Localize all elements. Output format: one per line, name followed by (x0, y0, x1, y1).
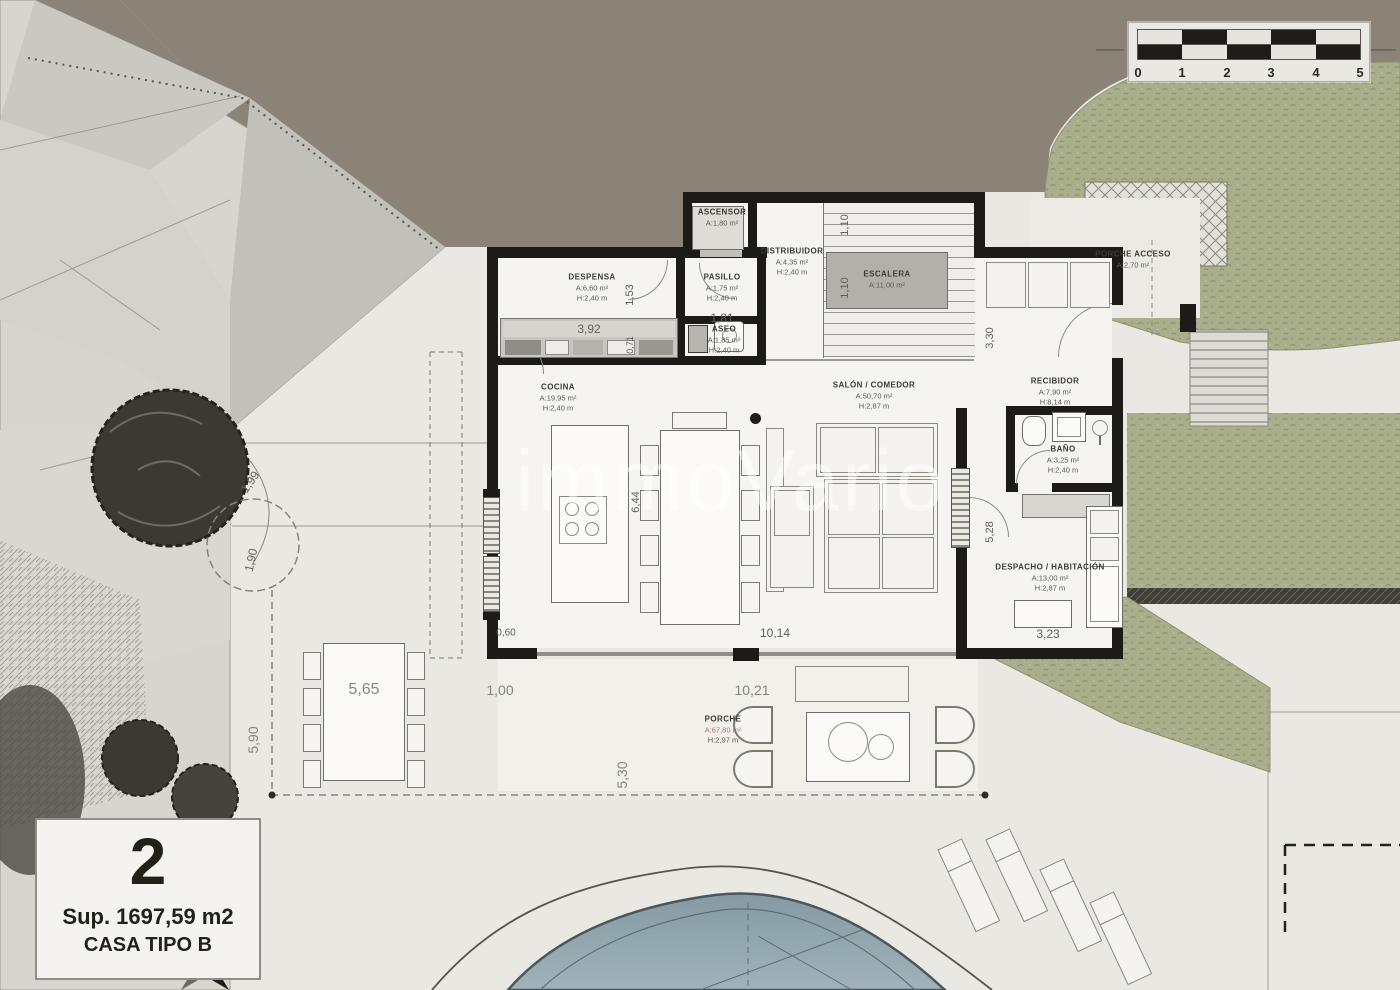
vegetation-right (1127, 413, 1400, 591)
room-label-distribuidor: DISTRIBUIDOR A:4,35 m² H:2,40 m (761, 246, 824, 277)
plot-title-box: 2 Sup. 1697,59 m2 CASA TIPO B (35, 818, 261, 980)
cabinet (573, 340, 603, 355)
room-area: A:19,95 m² (540, 393, 577, 403)
room-label-cocina: COCINA A:19,95 m² H:2,40 m (540, 382, 577, 413)
room-area: A:6,60 m² (568, 283, 615, 293)
dim-porch-width: 10,21 (734, 682, 769, 698)
cabinet (545, 340, 569, 355)
outdoor-table (323, 643, 405, 781)
wall-column (733, 648, 759, 661)
room-name: PASILLO (704, 272, 741, 283)
wall (956, 648, 1123, 659)
room-height: H:2,40 m (708, 345, 741, 355)
room-name: BAÑO (1047, 444, 1080, 455)
room-area: A:3,25 m² (1047, 455, 1080, 465)
outdoor-chair (407, 688, 425, 716)
room-height: H:2,87 m (995, 583, 1104, 593)
room-area: A:1,75 m² (704, 283, 741, 293)
wall (1006, 483, 1018, 492)
room-name: SALÓN / COMEDOR (833, 380, 915, 391)
scale-tick: 2 (1223, 65, 1230, 80)
room-height: H:2,40 m (1047, 465, 1080, 475)
scale-bar: 0 1 2 3 4 5 (1128, 22, 1370, 82)
room-area: A:1,85 m² (708, 335, 741, 345)
scale-cell (1138, 30, 1182, 44)
room-height: H:2,97 m (705, 735, 742, 745)
plot-surface: Sup. 1697,59 m2 (37, 904, 259, 930)
wall (748, 192, 757, 258)
room-area: A:67,80 m² (705, 725, 742, 735)
porch-chair (935, 750, 975, 788)
room-area: A:50,70 m² (833, 391, 915, 401)
closet (986, 262, 1026, 308)
room-area: A:13,00 m² (995, 573, 1104, 583)
dim-despacho-width: 3,23 (1036, 627, 1059, 641)
closet (1028, 262, 1068, 308)
sink-basin (1057, 417, 1081, 437)
scale-cell (1316, 30, 1360, 44)
dim-stair-upper: 1,10 (839, 214, 851, 235)
outdoor-chair (407, 724, 425, 752)
room-height: H:2,40 m (704, 293, 741, 303)
room-area: A:11,00 m² (863, 280, 910, 290)
floor-plan-canvas: ASCENSOR A:1,80 m² DISTRIBUIDOR A:4,35 m… (0, 0, 1400, 990)
dining-chair (672, 412, 727, 429)
room-label-escalera: ESCALERA A:11,00 m² (863, 270, 910, 291)
porch-bench-outline (795, 666, 909, 702)
scale-bar-tick-line (1096, 49, 1124, 51)
outdoor-chair (303, 652, 321, 680)
washbasin (688, 325, 708, 353)
dining-chair (640, 582, 659, 613)
dim-aseo-side: 0,71 (625, 336, 635, 354)
plot-number: 2 (37, 828, 259, 894)
scale-bar-row (1137, 29, 1361, 45)
wall (683, 192, 985, 203)
room-label-bano: BAÑO A:3,25 m² H:2,40 m (1047, 444, 1080, 475)
wall (483, 611, 500, 620)
shower-valve (1092, 420, 1108, 436)
sofa-cushion (828, 537, 880, 589)
toilet (1022, 416, 1046, 446)
sliding-glass-door (537, 652, 733, 656)
room-label-porche: PORCHE A:67,80 m² H:2,97 m (705, 714, 742, 745)
room-label-recibidor: RECIBIDOR A:7,90 m² H:8,14 m (1031, 376, 1080, 407)
room-area: A:4,35 m² (761, 257, 824, 267)
scale-cell (1182, 45, 1226, 59)
room-name: PORCHE (705, 714, 742, 725)
dining-chair (640, 535, 659, 566)
room-name: RECIBIDOR (1031, 376, 1080, 387)
porch-table-plate (828, 722, 868, 762)
scale-cell (1271, 45, 1315, 59)
bed-pillow (1090, 510, 1119, 534)
entry-steps (1190, 330, 1268, 426)
room-height: H:2,40 m (540, 403, 577, 413)
outdoor-chair (407, 652, 425, 680)
bed-pillow (1090, 537, 1119, 561)
room-name: ASCENSOR (698, 208, 747, 219)
room-label-porche-acceso: PORCHE ACCESO A:2,70 m² (1095, 250, 1171, 271)
desk (1014, 600, 1072, 628)
scale-cell (1271, 30, 1315, 44)
room-label-despacho: DESPACHO / HABITACIÓN A:13,00 m² H:2,87 … (995, 562, 1104, 593)
dim-recibidor-side: 3,30 (984, 327, 996, 348)
room-label-pasillo: PASILLO A:1,75 m² H:2,40 m (704, 272, 741, 303)
wall (683, 192, 692, 258)
room-height: H:2,40 m (568, 293, 615, 303)
scale-tick: 4 (1312, 65, 1319, 80)
room-label-ascensor: ASCENSOR A:1,80 m² (698, 208, 747, 229)
room-area: A:2,70 m² (1095, 260, 1171, 270)
elevator-door (700, 250, 742, 257)
stair-edge-line (766, 359, 974, 361)
dim-outdoor-table: 5,65 (348, 681, 379, 699)
window (483, 497, 500, 554)
dim-despensa-cabinets: 3,92 (577, 322, 600, 336)
dining-chair (741, 535, 760, 566)
dim-despacho-side: 5,28 (984, 521, 996, 542)
dim-porch-depth: 5,30 (614, 761, 630, 788)
scale-cell (1227, 30, 1271, 44)
sliding-glass-door (759, 652, 956, 656)
cabinet (639, 340, 673, 355)
room-name: PORCHE ACCESO (1095, 250, 1171, 261)
pendant-light (750, 413, 761, 424)
room-label-despensa: DESPENSA A:6,60 m² H:2,40 m (568, 272, 615, 303)
room-label-salon-comedor: SALÓN / COMEDOR A:50,70 m² H:2,87 m (833, 380, 915, 411)
wall (487, 648, 537, 659)
wall (1006, 406, 1015, 492)
porch-table-plate (868, 734, 894, 760)
room-name: DESPENSA (568, 272, 615, 283)
pool (432, 866, 992, 990)
room-name: DESPACHO / HABITACIÓN (995, 562, 1104, 573)
room-name: ESCALERA (863, 270, 910, 281)
dim-stair-lower: 1,10 (839, 277, 851, 298)
shower-valve-stem (1099, 436, 1101, 445)
retaining-wall (1127, 588, 1400, 604)
scale-tick: 0 (1134, 65, 1141, 80)
room-height: H:2,40 m (761, 267, 824, 277)
room-area: A:1,80 m² (698, 218, 747, 228)
watermark: immoVario (515, 432, 947, 531)
scale-cell (1316, 45, 1360, 59)
room-area: A:7,90 m² (1031, 387, 1080, 397)
cabinet (505, 340, 541, 355)
scale-cell (1227, 45, 1271, 59)
dim-terrace-side: 5,90 (245, 726, 261, 753)
dim-salon-width: 10,14 (760, 626, 790, 640)
porch-chair (935, 706, 975, 744)
scale-bar-tick-line (1370, 49, 1396, 51)
room-name: ASEO (708, 324, 741, 335)
scale-bar-row (1137, 44, 1361, 60)
scale-cell (1182, 30, 1226, 44)
outdoor-chair (407, 760, 425, 788)
scale-tick: 1 (1178, 65, 1185, 80)
scale-cell (1138, 45, 1182, 59)
room-label-aseo: ASEO A:1,85 m² H:2,40 m (708, 324, 741, 355)
scale-tick: 5 (1356, 65, 1363, 80)
dim-despensa-side: 1,53 (624, 284, 636, 305)
dim-aseo-width: 1,81 (710, 311, 733, 325)
dim-wall-segment: 0,60 (496, 628, 515, 639)
window (951, 468, 970, 548)
sofa-cushion (882, 537, 934, 589)
outdoor-chair (303, 760, 321, 788)
room-name: DISTRIBUIDOR (761, 246, 824, 257)
room-height: H:2,87 m (833, 401, 915, 411)
dining-chair (741, 582, 760, 613)
scale-tick: 3 (1267, 65, 1274, 80)
sun-loungers (938, 829, 1152, 985)
wall (1052, 483, 1123, 492)
outdoor-chair (303, 724, 321, 752)
room-name: COCINA (540, 382, 577, 393)
room-height: H:8,14 m (1031, 397, 1080, 407)
wall (974, 192, 985, 258)
window (483, 556, 500, 612)
house-type: CASA TIPO B (37, 934, 259, 957)
porch-chair (733, 750, 773, 788)
dim-porch-offset: 1,00 (486, 682, 513, 698)
outdoor-chair (303, 688, 321, 716)
